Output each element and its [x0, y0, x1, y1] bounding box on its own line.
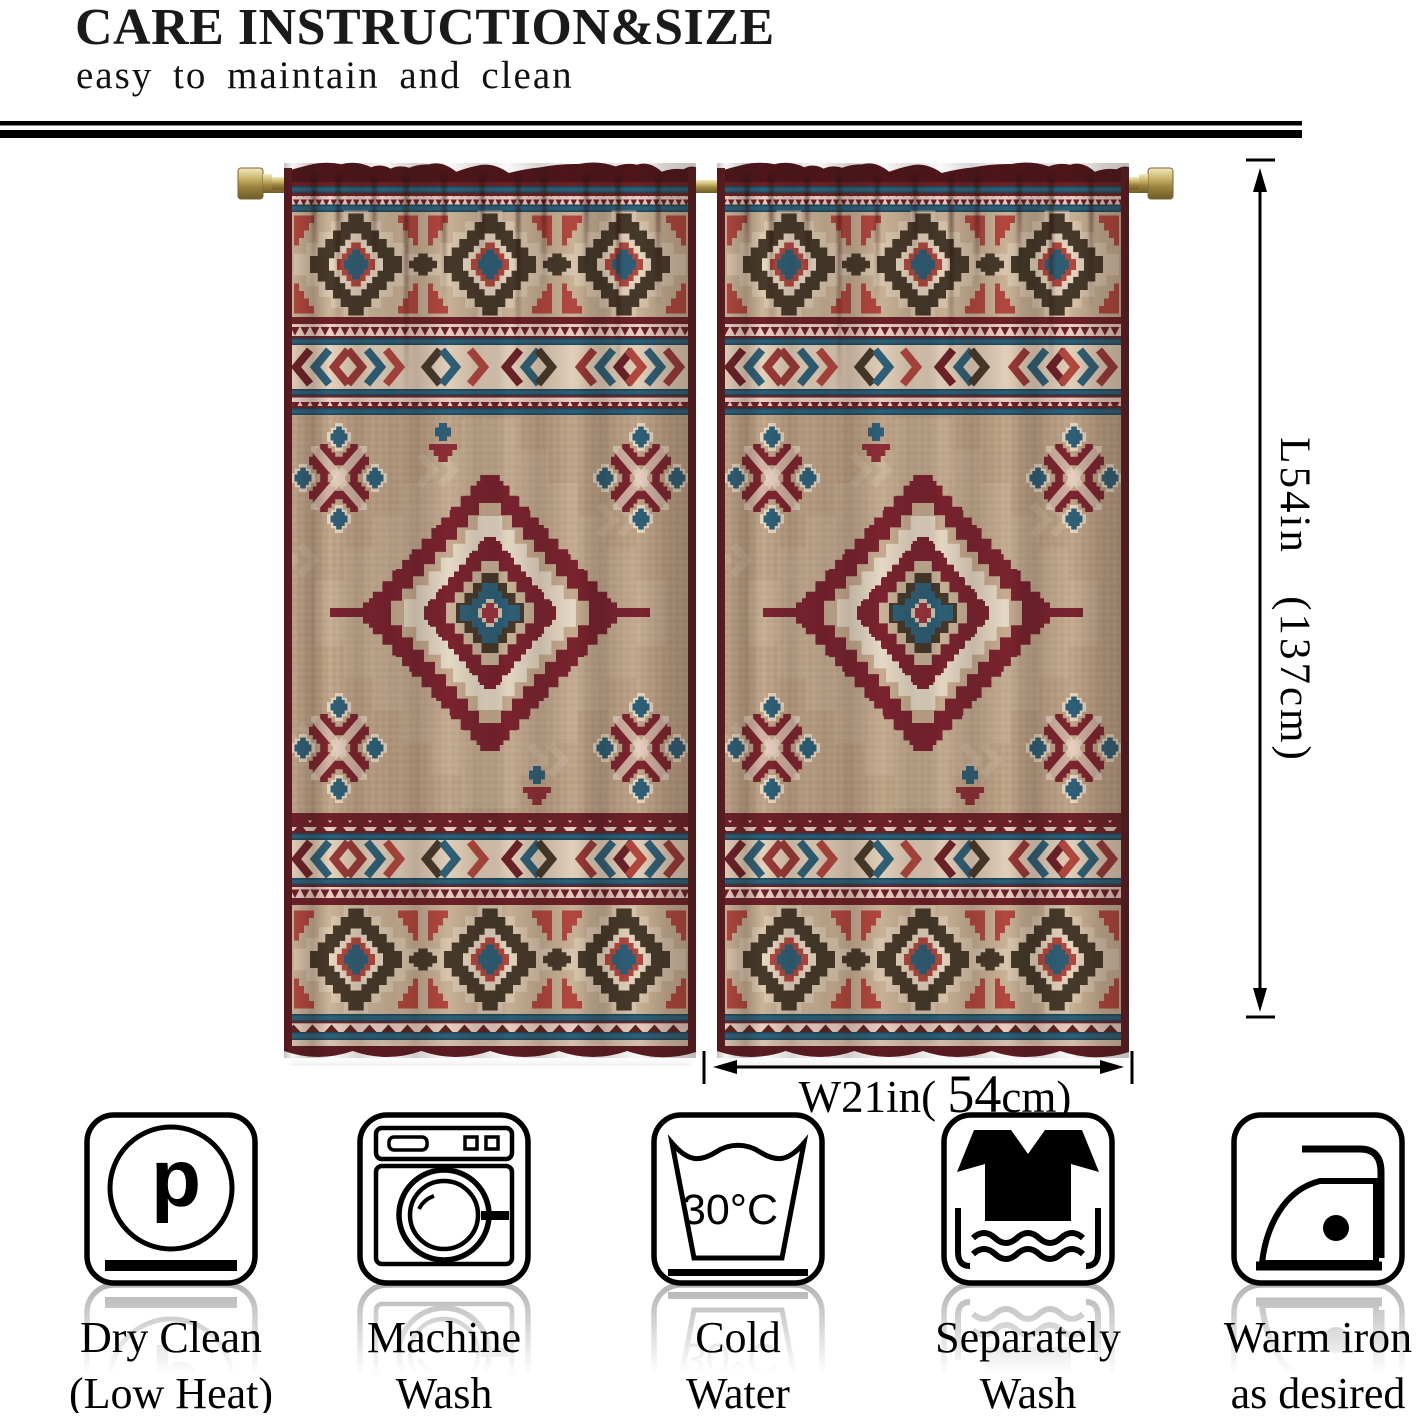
- svg-text:CARE INSTRUCTION&SIZE: CARE INSTRUCTION&SIZE: [75, 0, 775, 56]
- svg-text:(Low Heat): (Low Heat): [69, 1369, 273, 1413]
- svg-text:as desired: as desired: [1231, 1369, 1406, 1413]
- svg-text:Warm iron: Warm iron: [1224, 1313, 1412, 1362]
- svg-text:L54in (137cm): L54in (137cm): [1271, 437, 1318, 763]
- svg-text:Separately: Separately: [935, 1313, 1121, 1362]
- svg-text:Water: Water: [686, 1369, 790, 1413]
- svg-text:Cold: Cold: [695, 1313, 781, 1362]
- svg-text:p: p: [151, 1133, 201, 1224]
- svg-text:easy to maintain and clean: easy to maintain and clean: [76, 54, 574, 97]
- svg-text:Machine: Machine: [367, 1313, 521, 1362]
- svg-text:Dry Clean: Dry Clean: [80, 1313, 262, 1362]
- svg-text:Wash: Wash: [980, 1369, 1077, 1413]
- svg-text:Wash: Wash: [396, 1369, 493, 1413]
- svg-text:30°C: 30°C: [682, 1186, 778, 1234]
